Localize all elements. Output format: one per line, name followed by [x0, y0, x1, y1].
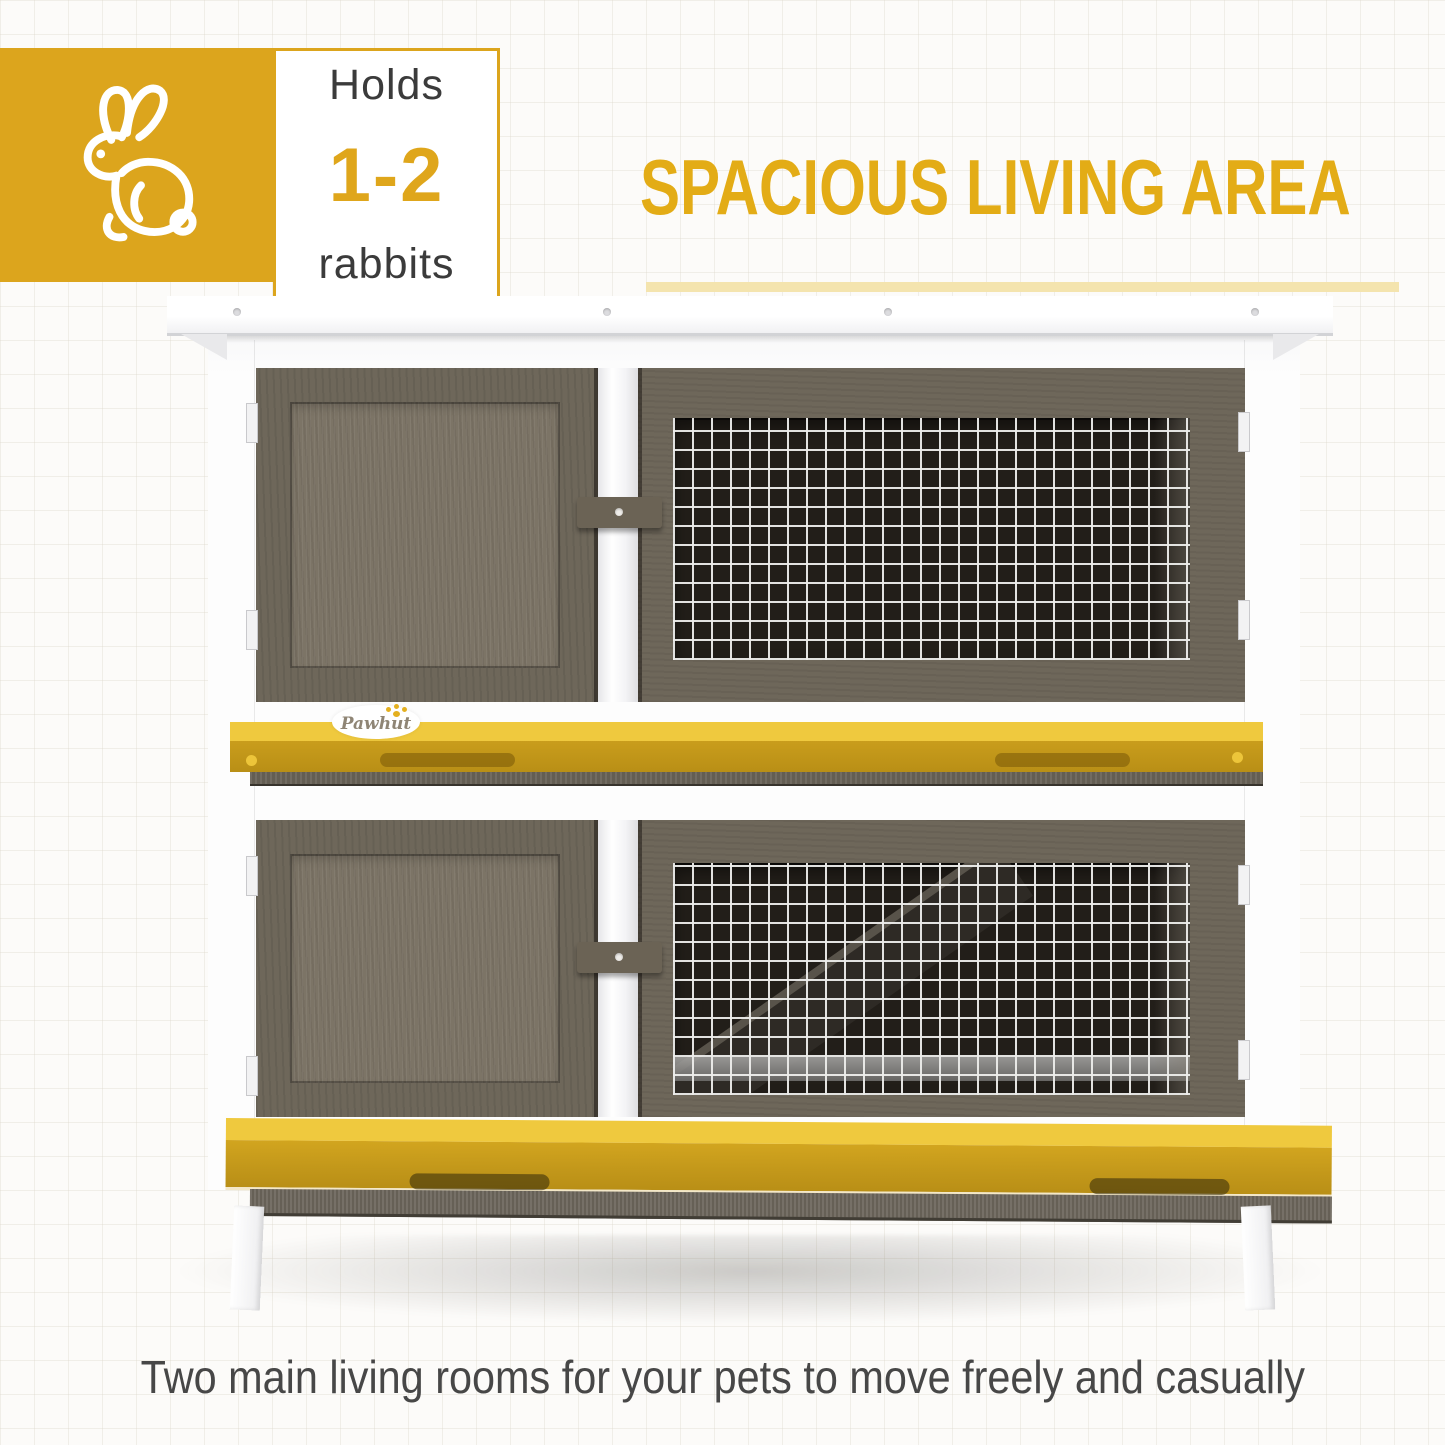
- roof-screw: [884, 308, 892, 316]
- caption-text: Two main living rooms for your pets to m…: [140, 1350, 1304, 1404]
- brand-logo-text: Pawhut: [341, 714, 412, 734]
- caption: Two main living rooms for your pets to m…: [0, 1350, 1445, 1404]
- lower-left-hinge: [246, 1056, 258, 1096]
- marketing-page: Holds 1-2 rabbits SPACIOUS LIVING AREA: [0, 0, 1445, 1445]
- paw-print-icon: [402, 707, 407, 712]
- upper-mesh-window: [673, 418, 1190, 660]
- brand-logo: Pawhut: [332, 705, 420, 739]
- lower-mesh-window: [673, 863, 1190, 1095]
- lower-door-latch: [577, 942, 662, 973]
- lower-right-mesh-door: [638, 820, 1245, 1117]
- lower-right-hinge: [1238, 1040, 1250, 1080]
- rabbit-icon: [50, 72, 225, 262]
- upper-left-hinge: [246, 610, 258, 650]
- lower-right-hinge: [1238, 865, 1250, 905]
- lower-door-panel: [290, 854, 560, 1083]
- latch-screw: [615, 508, 623, 516]
- bottom-litter-tray: [225, 1118, 1331, 1198]
- lower-left-solid-door: [256, 820, 598, 1117]
- roof-screw: [233, 308, 241, 316]
- upper-center-stile: [598, 368, 638, 702]
- upper-door-latch: [577, 497, 662, 528]
- paw-print-icon: [394, 704, 399, 709]
- capacity-count: 1-2: [329, 132, 445, 219]
- rabbit-badge: [0, 48, 273, 282]
- upper-left-hinge: [246, 403, 258, 443]
- tray-handle-slot: [410, 1173, 550, 1190]
- upper-left-solid-door: [256, 368, 598, 702]
- section-title: SPACIOUS LIVING AREA: [640, 148, 1351, 226]
- hutch-roof: [167, 296, 1333, 336]
- upper-right-hinge: [1238, 600, 1250, 640]
- upper-right-hinge: [1238, 412, 1250, 452]
- roof-screw: [603, 308, 611, 316]
- tray-handle-slot: [1089, 1178, 1229, 1195]
- tray-screw: [1232, 752, 1243, 763]
- paw-print-icon: [386, 707, 391, 712]
- roof-screw: [1251, 308, 1259, 316]
- tray-handle-slot: [380, 753, 515, 767]
- capacity-holds-label: Holds: [329, 61, 444, 110]
- left-leg: [230, 1205, 265, 1310]
- capacity-badge: Holds 1-2 rabbits: [273, 48, 500, 304]
- title-underline: [646, 282, 1399, 292]
- right-leg: [1241, 1205, 1276, 1310]
- middle-wood-rail: [250, 772, 1263, 786]
- upper-right-mesh-door: [638, 368, 1245, 702]
- ground-shadow: [170, 1235, 1330, 1325]
- lower-left-hinge: [246, 856, 258, 896]
- paw-print-icon: [393, 711, 400, 717]
- tray-handle-slot: [995, 753, 1130, 767]
- wire-mesh: [673, 863, 1190, 1095]
- capacity-animal-label: rabbits: [318, 240, 454, 289]
- upper-door-panel: [290, 402, 560, 668]
- wire-mesh: [673, 418, 1190, 660]
- tray-screw: [246, 755, 257, 766]
- latch-screw: [615, 953, 623, 961]
